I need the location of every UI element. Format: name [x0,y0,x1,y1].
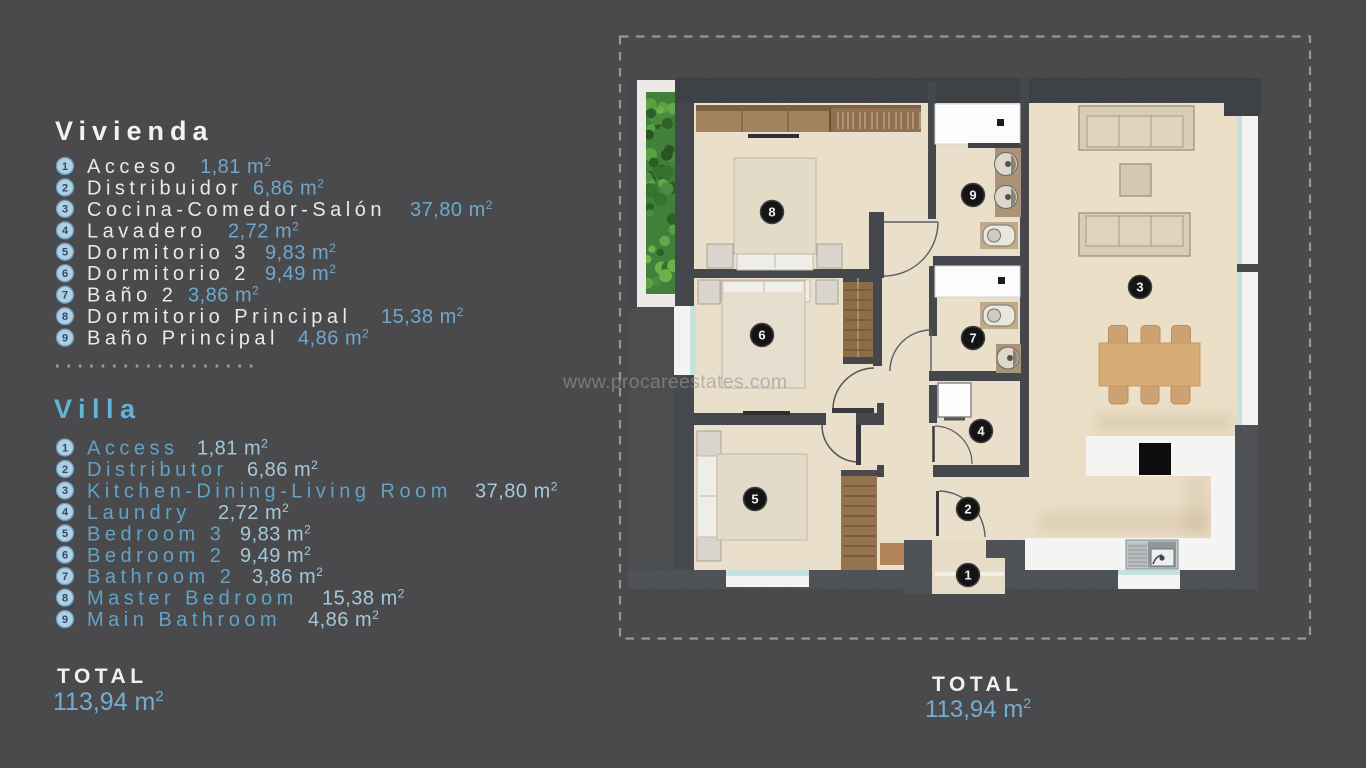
svg-text:1,81 m2: 1,81 m2 [200,155,271,178]
svg-text:6: 6 [758,328,765,343]
svg-text:2,72 m2: 2,72 m2 [218,501,289,524]
svg-text:Master Bedroom: Master Bedroom [87,588,298,610]
svg-text:Dormitorio Principal: Dormitorio Principal [87,306,352,328]
svg-text:2: 2 [964,502,971,517]
svg-text:9,83 m2: 9,83 m2 [265,241,336,264]
svg-text:Cocina-Comedor-Salón: Cocina-Comedor-Salón [87,199,386,221]
svg-text:4: 4 [977,424,985,439]
svg-text:Distributor: Distributor [87,459,228,481]
svg-text:2: 2 [62,182,68,194]
svg-text:5: 5 [62,528,68,540]
svg-text:113,94 m2: 113,94 m2 [925,695,1031,723]
svg-text:1: 1 [964,568,971,583]
svg-text:Dormitorio 2: Dormitorio 2 [87,263,250,285]
svg-text:Acceso: Acceso [87,156,180,178]
svg-text:1: 1 [62,161,68,173]
svg-text:Villa: Villa [54,394,142,424]
svg-text:Dormitorio 3: Dormitorio 3 [87,242,250,264]
svg-text:15,38 m2: 15,38 m2 [322,587,405,610]
svg-text:2,72 m2: 2,72 m2 [228,219,299,242]
svg-text:7: 7 [62,290,68,302]
svg-text:9: 9 [62,614,68,626]
svg-text:1,81 m2: 1,81 m2 [197,437,268,460]
svg-text:TOTAL: TOTAL [932,673,1023,696]
svg-text:6: 6 [62,550,68,562]
svg-text:3,86 m2: 3,86 m2 [188,284,259,307]
svg-text:3: 3 [1136,280,1143,295]
svg-text:TOTAL: TOTAL [57,665,148,688]
svg-text:8: 8 [768,205,775,220]
svg-text:3,86 m2: 3,86 m2 [252,565,323,588]
svg-text:Lavadero: Lavadero [87,220,206,242]
svg-text:4,86 m2: 4,86 m2 [298,327,369,350]
svg-text:3: 3 [62,485,68,497]
svg-text:7: 7 [969,331,976,346]
svg-text:Baño Principal: Baño Principal [87,328,279,350]
svg-text:8: 8 [62,311,68,323]
svg-text:9: 9 [969,188,976,203]
svg-text:Bathroom 2: Bathroom 2 [87,566,235,588]
svg-text:3: 3 [62,204,68,216]
svg-text:Kitchen-Dining-Living Room: Kitchen-Dining-Living Room [87,480,452,502]
svg-text:1: 1 [62,442,68,454]
svg-text:Distribuidor: Distribuidor [87,177,242,199]
svg-text:2: 2 [62,464,68,476]
svg-text:Baño 2: Baño 2 [87,285,177,307]
svg-text:4: 4 [62,225,69,237]
svg-text:4: 4 [62,507,69,519]
svg-text:7: 7 [62,571,68,583]
svg-text:Bedroom 2: Bedroom 2 [87,545,225,567]
svg-text:8: 8 [62,592,68,604]
svg-text:Bedroom 3: Bedroom 3 [87,523,225,545]
svg-text:5: 5 [62,247,68,259]
svg-text:9,83 m2: 9,83 m2 [240,522,311,545]
svg-text:15,38 m2: 15,38 m2 [381,305,464,328]
svg-text:Vivienda: Vivienda [55,116,214,146]
svg-text:9: 9 [62,332,68,344]
svg-text:9,49 m2: 9,49 m2 [265,262,336,285]
svg-text:9,49 m2: 9,49 m2 [240,544,311,567]
svg-text:6,86 m2: 6,86 m2 [247,458,318,481]
svg-text:4,86 m2: 4,86 m2 [308,608,379,631]
svg-text:6,86 m2: 6,86 m2 [253,176,324,199]
svg-text:Main Bathroom: Main Bathroom [87,609,281,631]
svg-text:6: 6 [62,268,68,280]
svg-text:37,80 m2: 37,80 m2 [475,479,558,502]
svg-text:37,80 m2: 37,80 m2 [410,198,493,221]
svg-text:5: 5 [751,492,758,507]
svg-text:113,94 m2: 113,94 m2 [53,688,164,716]
svg-text:www.procareestates.com: www.procareestates.com [562,371,787,393]
svg-text:Access: Access [87,438,178,460]
svg-text:Laundry: Laundry [87,502,191,524]
